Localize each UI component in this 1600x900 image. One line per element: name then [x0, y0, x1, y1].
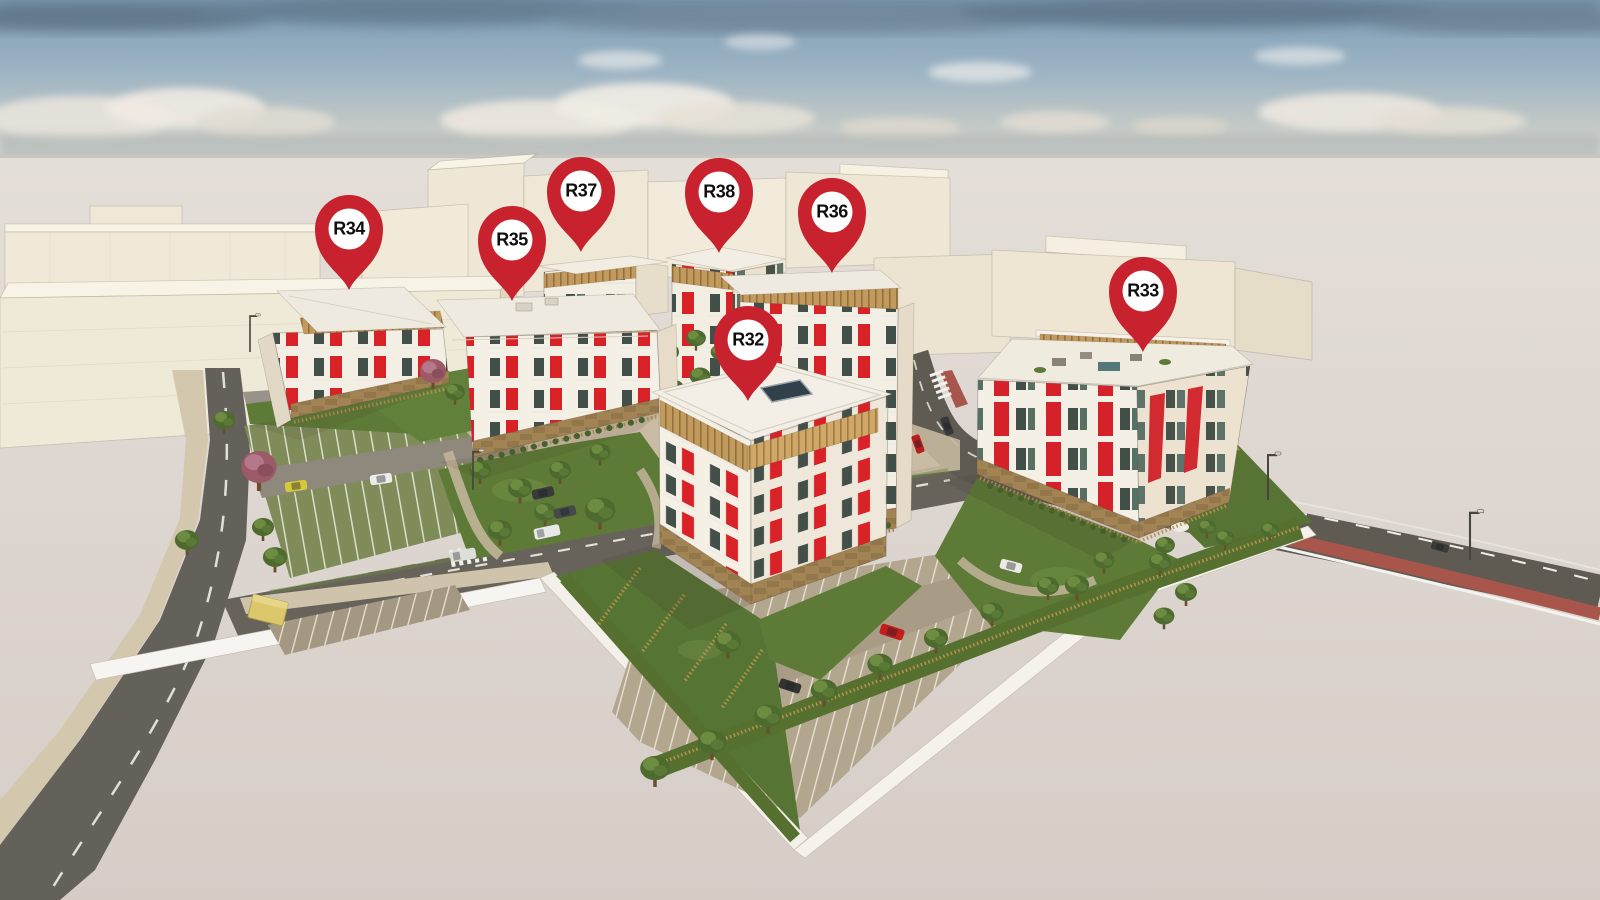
sky	[0, 0, 1600, 160]
map-pin-icon	[683, 157, 755, 253]
map-pin-icon	[476, 205, 548, 301]
map-pin-r33[interactable]: R33	[1107, 256, 1179, 352]
map-pin-icon	[545, 156, 617, 252]
site-render-scene	[0, 0, 1600, 900]
aerial-site-render: R34 R35 R37 R38 R36 R33	[0, 0, 1600, 900]
pin-label: R38	[703, 182, 735, 203]
map-pin-r32[interactable]: R32	[712, 305, 784, 401]
pin-label: R34	[333, 219, 365, 240]
map-pin-r36[interactable]: R36	[796, 177, 868, 273]
map-pin-r37[interactable]: R37	[545, 156, 617, 252]
pin-label: R35	[496, 230, 528, 251]
map-pin-icon	[1107, 256, 1179, 352]
map-pin-r34[interactable]: R34	[313, 194, 385, 290]
pin-label: R36	[816, 202, 848, 223]
pin-label: R32	[732, 330, 764, 351]
map-pin-r35[interactable]: R35	[476, 205, 548, 301]
pin-label: R37	[565, 181, 597, 202]
pin-label: R33	[1127, 281, 1159, 302]
map-pin-icon	[796, 177, 868, 273]
map-pin-r38[interactable]: R38	[683, 157, 755, 253]
map-pin-icon	[313, 194, 385, 290]
map-pin-icon	[712, 305, 784, 401]
